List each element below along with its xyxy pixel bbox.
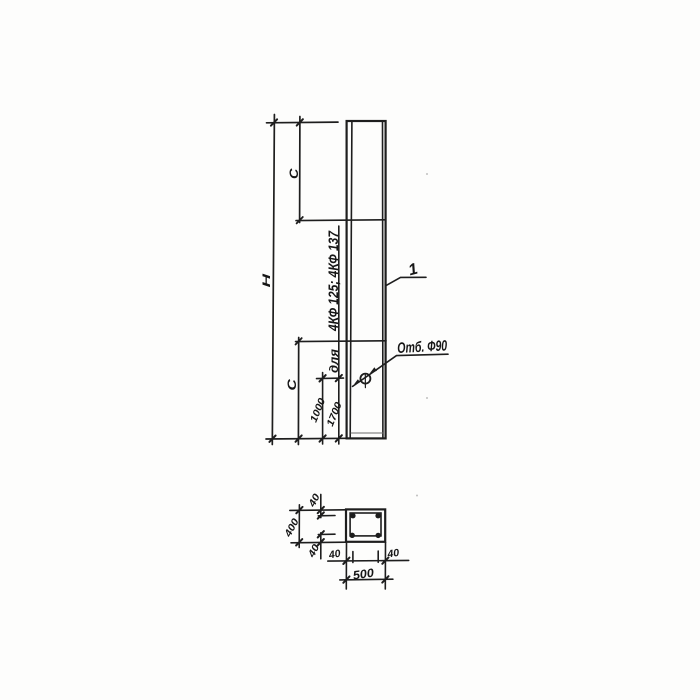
svg-text:500: 500 xyxy=(352,566,375,583)
svg-text:40: 40 xyxy=(386,547,400,561)
svg-text:Отб. Ф90: Отб. Ф90 xyxy=(397,337,448,357)
svg-text:4КФ 125; 4КФ 137: 4КФ 125; 4КФ 137 xyxy=(325,230,341,332)
svg-text:C: C xyxy=(285,378,299,390)
svg-text:40: 40 xyxy=(327,548,342,562)
svg-text:H: H xyxy=(261,273,273,288)
svg-text:для: для xyxy=(329,349,341,373)
svg-text:C: C xyxy=(287,168,301,179)
